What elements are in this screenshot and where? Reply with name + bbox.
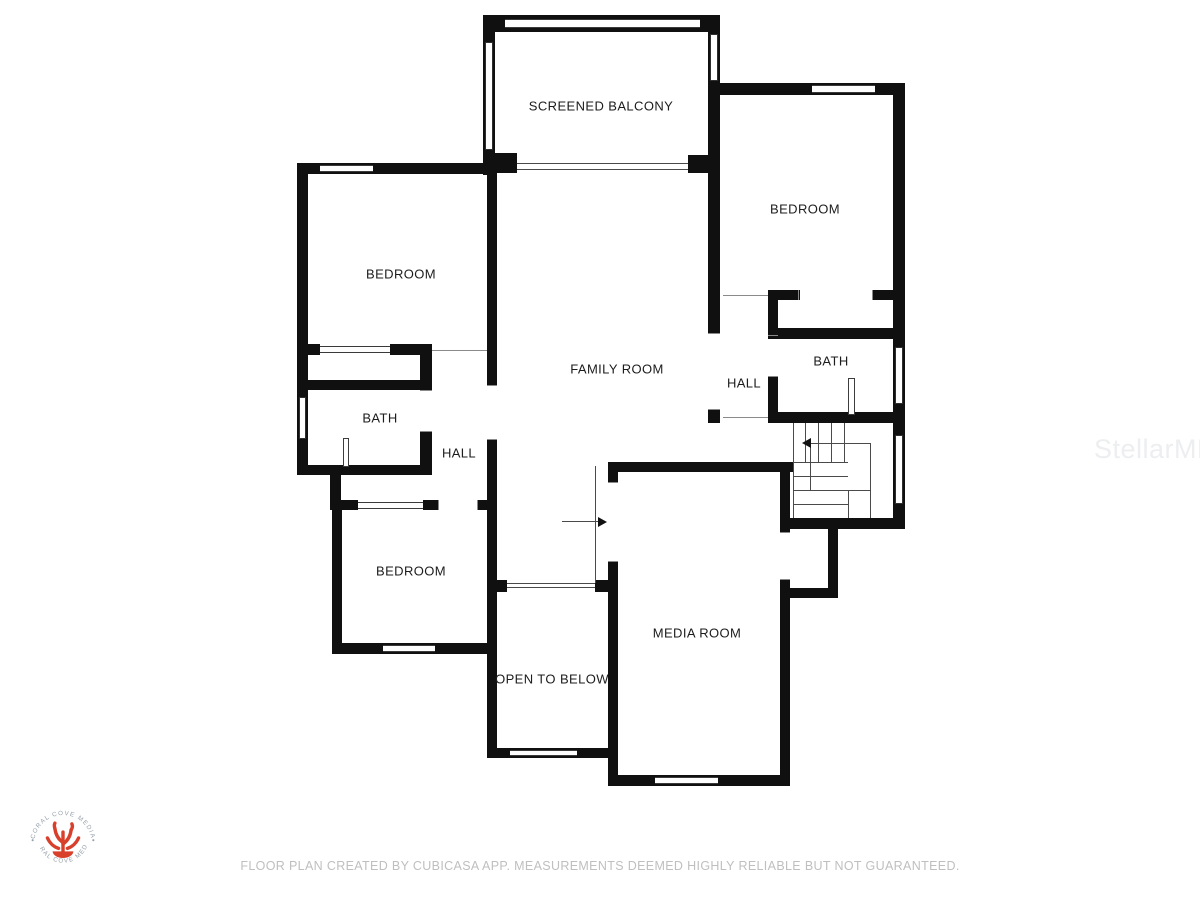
door-threshold-line xyxy=(708,409,720,410)
room-label-open-to-below: OPEN TO BELOW xyxy=(495,672,609,687)
wall-segment xyxy=(297,465,432,475)
stair-or-opening-line xyxy=(870,443,871,490)
floor-plan: SCREENED BALCONYBEDROOMBEDROOMFAMILY ROO… xyxy=(0,0,1200,900)
room-label-screened-balcony: SCREENED BALCONY xyxy=(529,99,673,114)
footer-disclaimer: FLOOR PLAN CREATED BY CUBICASA APP. MEAS… xyxy=(0,859,1200,873)
stair-or-opening-line xyxy=(595,466,596,583)
window xyxy=(485,42,493,150)
door-threshold-line xyxy=(608,561,618,562)
door-threshold-line xyxy=(723,417,768,418)
window xyxy=(895,347,903,404)
stair-or-opening-line xyxy=(517,169,688,170)
stair-or-opening-line xyxy=(507,587,595,588)
door-threshold-line xyxy=(708,333,720,334)
stair-or-opening-line xyxy=(507,583,595,584)
stellar-mls-watermark: StellarMLS xyxy=(1094,434,1200,465)
stair-or-opening-line xyxy=(562,521,600,522)
bath-fixture xyxy=(848,378,855,415)
door-threshold-line xyxy=(420,431,432,432)
door-threshold-line xyxy=(477,500,478,510)
wall-segment xyxy=(487,440,497,758)
wall-segment xyxy=(308,380,432,390)
wall-segment xyxy=(828,518,838,598)
stair-or-opening-line xyxy=(815,443,868,444)
door-threshold-line xyxy=(768,335,778,336)
window xyxy=(812,85,875,93)
wall-segment xyxy=(595,580,617,592)
window xyxy=(299,397,306,439)
wall-segment xyxy=(780,472,790,532)
window xyxy=(320,346,390,353)
wall-segment xyxy=(768,328,893,339)
wall-segment xyxy=(487,163,497,385)
coral-icon xyxy=(47,823,78,853)
wall-segment xyxy=(873,290,893,300)
window xyxy=(510,750,577,756)
stair-or-opening-line xyxy=(517,163,688,164)
wall-segment xyxy=(768,290,778,329)
door-threshold-line xyxy=(487,439,497,440)
wall-segment xyxy=(780,580,790,785)
wall-segment xyxy=(332,500,342,653)
wall-segment xyxy=(423,500,438,510)
window xyxy=(655,777,718,784)
stair-or-opening-line xyxy=(870,490,871,518)
wall-segment xyxy=(478,500,497,510)
window xyxy=(320,165,373,172)
wall-segment xyxy=(768,412,905,423)
stair-or-opening-line xyxy=(793,504,848,505)
door-threshold-line xyxy=(872,290,873,300)
wall-segment xyxy=(708,83,905,95)
stair-direction-arrow xyxy=(802,438,811,448)
room-label-bath-w: BATH xyxy=(362,411,397,426)
stair-or-opening-line xyxy=(810,490,871,491)
door-threshold-line xyxy=(438,500,439,510)
room-label-bath-e: BATH xyxy=(813,354,848,369)
wall-segment xyxy=(708,83,720,333)
wall-segment xyxy=(420,432,432,475)
stair-or-opening-line xyxy=(793,462,848,463)
window xyxy=(383,645,435,652)
door-threshold-line xyxy=(420,390,432,391)
door-threshold-line xyxy=(780,579,790,580)
room-label-bedroom-sw: BEDROOM xyxy=(376,564,446,579)
room-label-family-room: FAMILY ROOM xyxy=(570,362,664,377)
bath-fixture xyxy=(343,438,349,467)
stair-or-opening-line xyxy=(793,476,848,477)
room-label-hall-w: HALL xyxy=(442,446,476,461)
window xyxy=(505,19,700,28)
door-threshold-line xyxy=(487,385,497,386)
door-threshold-line xyxy=(723,295,768,296)
door-threshold-line xyxy=(432,350,487,351)
room-label-hall-e: HALL xyxy=(727,376,761,391)
wall-segment xyxy=(708,410,720,423)
room-label-bedroom-ne: BEDROOM xyxy=(770,202,840,217)
door-threshold-line xyxy=(780,532,790,533)
wall-segment xyxy=(768,377,778,412)
window xyxy=(710,34,718,81)
wall-segment xyxy=(780,518,905,529)
stair-or-opening-line xyxy=(810,443,811,490)
window xyxy=(895,435,903,504)
wall-segment xyxy=(297,163,308,353)
media-entry-arrow xyxy=(598,517,607,527)
room-label-bedroom-w: BEDROOM xyxy=(366,267,436,282)
wall-segment xyxy=(787,588,838,598)
room-label-media-room: MEDIA ROOM xyxy=(653,626,742,641)
wall-segment xyxy=(608,462,793,472)
door-threshold-line xyxy=(798,290,799,300)
door-threshold-line xyxy=(768,376,778,377)
window xyxy=(358,502,423,509)
stair-or-opening-line xyxy=(848,490,849,518)
door-threshold-line xyxy=(608,482,618,483)
